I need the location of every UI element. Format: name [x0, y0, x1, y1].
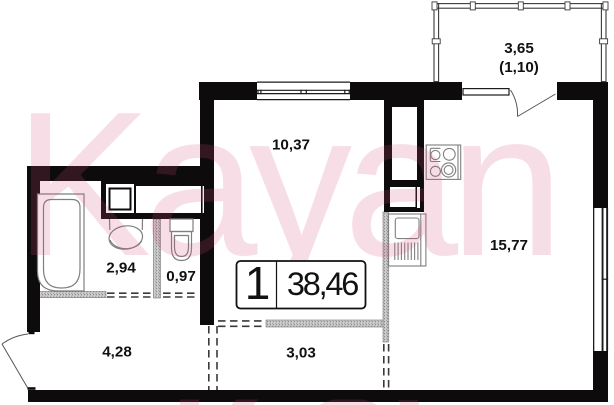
- svg-text:1: 1: [245, 257, 271, 309]
- svg-text:38,46: 38,46: [287, 266, 358, 302]
- svg-text:3,03: 3,03: [286, 345, 316, 362]
- svg-text:3,65: 3,65: [504, 40, 534, 57]
- svg-text:4,28: 4,28: [102, 344, 132, 361]
